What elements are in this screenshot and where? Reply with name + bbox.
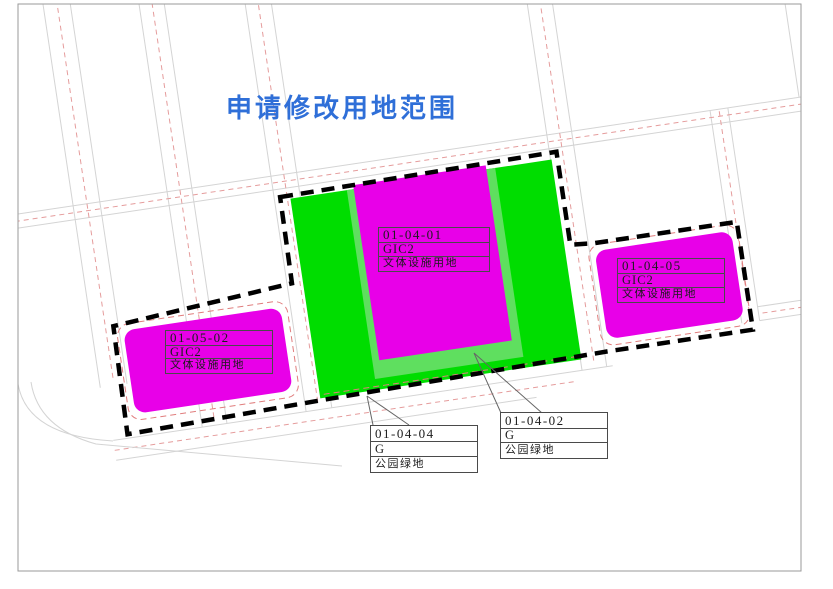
label-box-park-right: 01-04-02 G 公园绿地 [500, 412, 608, 459]
parcel-code: 01-04-04 [371, 426, 477, 442]
parcel-class: G [501, 429, 607, 443]
parcel-code: 01-04-02 [501, 413, 607, 429]
parcel-class: GIC2 [379, 243, 489, 257]
parcel-use: 文体设施用地 [379, 257, 489, 271]
parcel-class: G [371, 442, 477, 457]
label-box-right: 01-04-05 GIC2 文体设施用地 [617, 258, 725, 303]
parcel-code: 01-05-02 [166, 331, 272, 346]
parcel-use: 公园绿地 [371, 457, 477, 472]
label-box-left: 01-05-02 GIC2 文体设施用地 [165, 330, 273, 374]
parcel-use: 公园绿地 [501, 443, 607, 458]
parcel-use: 文体设施用地 [618, 288, 724, 302]
planning-map: 申请修改用地范围 01-04-01 GIC2 文体设施用地 01-05-02 G… [0, 0, 833, 589]
label-box-park-left: 01-04-04 G 公园绿地 [370, 425, 478, 473]
parcel-class: GIC2 [618, 274, 724, 288]
page-title: 申请修改用地范围 [226, 88, 458, 125]
parcel-use: 文体设施用地 [166, 359, 272, 373]
parcel-code: 01-04-01 [379, 228, 489, 243]
label-box-center: 01-04-01 GIC2 文体设施用地 [378, 227, 490, 272]
parcel-code: 01-04-05 [618, 259, 724, 274]
parcel-class: GIC2 [166, 346, 272, 359]
